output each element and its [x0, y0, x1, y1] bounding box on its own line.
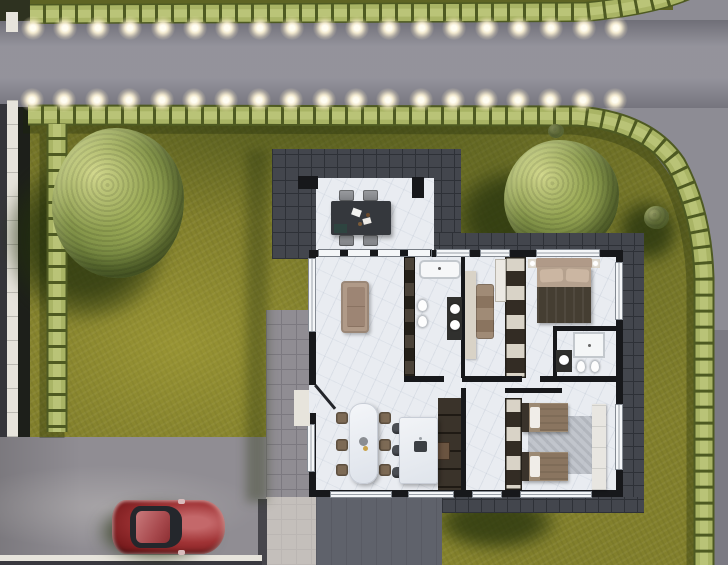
entrance-opening — [309, 385, 316, 413]
hall-wall — [461, 388, 466, 490]
master-blanket — [537, 287, 591, 323]
site-plan-render — [0, 0, 728, 565]
dining-chair — [336, 439, 348, 451]
console — [465, 271, 476, 359]
kids-bed — [522, 452, 568, 481]
terrace-chair — [339, 190, 354, 201]
window — [480, 249, 510, 257]
window — [307, 424, 315, 472]
window — [330, 491, 392, 498]
dining-chair — [336, 412, 348, 424]
pillow — [540, 268, 564, 282]
toilet — [576, 360, 586, 373]
mid-wall-a — [404, 376, 444, 382]
sink — [559, 355, 569, 365]
cabinet — [495, 259, 506, 302]
window — [308, 258, 316, 332]
chaise — [476, 284, 494, 339]
kids-wardrobe — [505, 398, 522, 490]
window — [615, 262, 623, 320]
kids-dresser — [592, 404, 606, 490]
terrace-column-right — [412, 177, 424, 198]
terrace-tray — [334, 224, 347, 233]
lamp — [593, 261, 598, 266]
sink — [450, 304, 460, 314]
terrace-sliding-door — [318, 249, 432, 257]
dining-chair — [379, 439, 391, 451]
mid-wall-c — [540, 376, 622, 382]
terrace-column-left — [298, 176, 318, 189]
dining-chair — [336, 464, 348, 476]
kids-bed-headboard — [522, 452, 529, 481]
terrace-chair — [363, 235, 378, 246]
mid-wall-b — [462, 376, 522, 382]
kids-blanket — [540, 453, 568, 480]
car-mirror — [178, 550, 185, 555]
kidsroom-wall-n — [505, 388, 562, 393]
window — [520, 491, 592, 498]
sink — [450, 320, 460, 330]
kids-bed-headboard — [522, 403, 529, 432]
shower-drain — [588, 344, 591, 347]
table-bowl — [359, 437, 368, 446]
apron-east — [620, 250, 644, 512]
kids-blanket — [540, 404, 568, 431]
car-group — [112, 498, 225, 556]
house — [0, 0, 728, 565]
lamp — [530, 261, 535, 266]
terrace-chair — [339, 235, 354, 246]
window — [536, 249, 600, 257]
paving-shadow-south — [316, 497, 442, 565]
island-sink — [414, 441, 427, 452]
car-mirror — [178, 499, 185, 504]
kids-bed — [522, 403, 568, 432]
window — [408, 491, 454, 498]
table-bowl-small — [363, 446, 368, 451]
kids-pillow — [530, 407, 540, 428]
car-roof — [136, 511, 170, 543]
terrace-chair — [363, 190, 378, 201]
dining-chair — [379, 464, 391, 476]
window — [615, 404, 623, 470]
window — [436, 249, 470, 257]
bathtub-drain — [438, 267, 441, 270]
apron-south — [442, 497, 644, 513]
dining-chair — [379, 412, 391, 424]
sofa-cushions — [347, 287, 365, 327]
bidet — [590, 360, 600, 373]
entrance-threshold — [294, 390, 310, 426]
bidet — [417, 315, 428, 328]
kids-pillow — [530, 456, 540, 477]
terrace-bottle — [366, 213, 370, 217]
window — [472, 491, 502, 498]
ensuite-wall-n — [553, 326, 622, 331]
pillow — [566, 268, 590, 282]
terrace-bottle — [358, 222, 362, 226]
toilet — [417, 299, 428, 312]
island-faucet — [419, 437, 422, 440]
shelf-wall — [404, 257, 415, 378]
master-wardrobe — [505, 257, 526, 378]
